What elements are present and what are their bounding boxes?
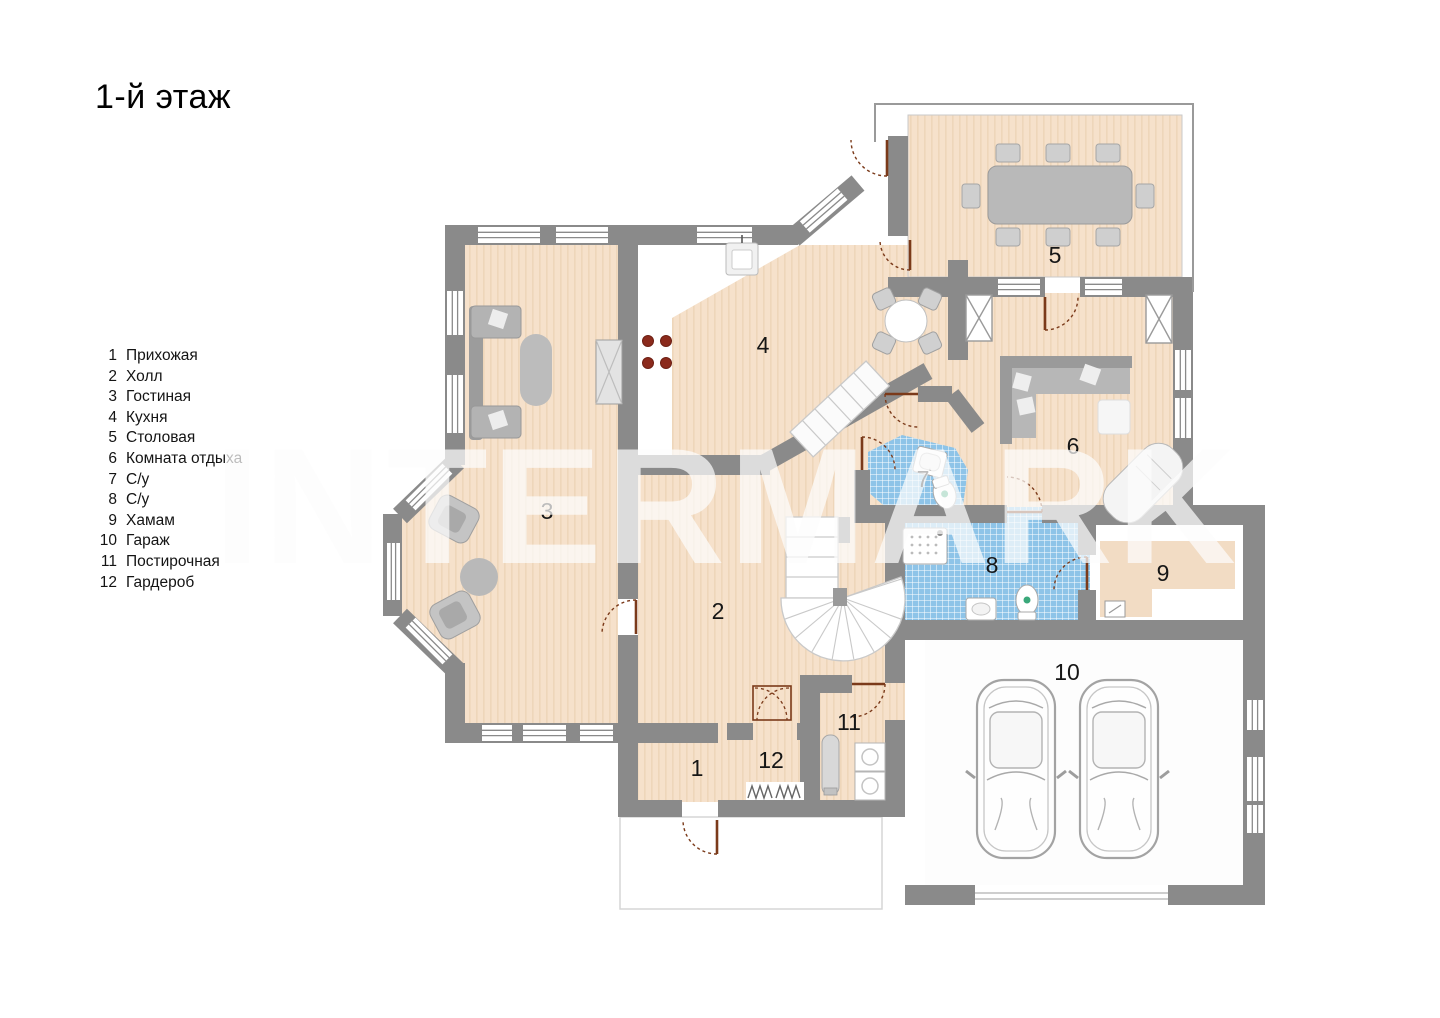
porch-floor <box>620 817 882 909</box>
room-8-door-notch <box>1007 507 1042 523</box>
room-label-1: 1 <box>691 755 704 781</box>
window <box>1175 350 1191 390</box>
room-label-11: 11 <box>837 709 861 735</box>
wardrobe-rail-icon <box>746 782 804 800</box>
window <box>1247 757 1263 801</box>
garage-door <box>975 893 1168 899</box>
window <box>478 227 540 243</box>
washer-icon <box>855 743 885 771</box>
room-label-3: 3 <box>541 498 554 524</box>
window <box>998 279 1040 295</box>
room-label-12: 12 <box>758 747 784 773</box>
window <box>1175 398 1191 438</box>
window <box>556 227 608 243</box>
ironing-board-icon <box>822 735 839 795</box>
side-table-icon <box>460 558 498 596</box>
shower-icon <box>903 528 947 564</box>
room-label-2: 2 <box>712 598 725 624</box>
window <box>447 291 463 335</box>
room-label-4: 4 <box>757 332 770 358</box>
room-label-8: 8 <box>986 552 999 578</box>
window <box>482 725 512 741</box>
window <box>1247 700 1263 730</box>
room-label-7: 7 <box>917 466 930 492</box>
fireplace-icon <box>596 340 622 404</box>
car-icon <box>1069 680 1169 858</box>
sink-icon <box>966 598 996 620</box>
room-label-9: 9 <box>1157 560 1170 586</box>
window <box>697 227 752 243</box>
floor-plan-drawing: 1 2 3 4 5 6 7 8 9 10 11 12 <box>0 0 1440 1018</box>
column-icon <box>1146 295 1172 343</box>
column-icon <box>966 295 992 341</box>
car-icon <box>966 680 1066 858</box>
window <box>1085 279 1122 295</box>
toilet-icon <box>1016 585 1038 620</box>
window <box>1247 805 1263 833</box>
room-label-6: 6 <box>1067 433 1080 459</box>
window <box>580 725 613 741</box>
room-label-5: 5 <box>1049 242 1062 268</box>
window <box>523 725 566 741</box>
window <box>387 543 400 600</box>
floor-plan-page: 1-й этаж 1Прихожая 2Холл 3Гостиная 4Кухн… <box>0 0 1440 1018</box>
window <box>447 375 463 433</box>
room-label-10: 10 <box>1054 659 1080 685</box>
washer-icon <box>855 772 885 800</box>
